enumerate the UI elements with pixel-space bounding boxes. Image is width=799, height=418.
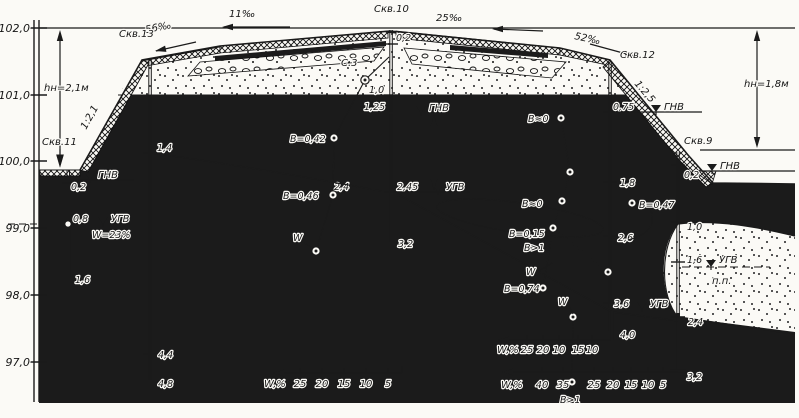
moisture-point bbox=[361, 76, 369, 84]
w-scale-c-tick-5: 10 bbox=[642, 380, 655, 391]
w-scale-a-tick-4: 5 bbox=[385, 379, 391, 390]
sample-b074: В=0,74 bbox=[504, 284, 540, 295]
w-scale-c-tick-2: 25 bbox=[588, 380, 601, 391]
skv9-depth-2-4: 2,4 bbox=[688, 317, 703, 328]
skv13-depth-4-8: 4,8 bbox=[158, 379, 173, 390]
sample-b0-top: В≈0 bbox=[528, 114, 549, 125]
sample-b046: В=0,46 bbox=[283, 191, 319, 202]
w-scale-b-label: W,% bbox=[497, 345, 519, 356]
gnv-skv9-label: ГНВ bbox=[720, 161, 740, 172]
ugv-skv9-label: УГВ bbox=[719, 255, 738, 266]
height-label-right: hн=1,8м bbox=[744, 79, 789, 90]
ugv-center-label: УГВ bbox=[446, 182, 465, 193]
w-scale-c-tick-3: 20 bbox=[607, 380, 620, 391]
skv10-depth-0-2: 0,2 bbox=[396, 33, 411, 44]
skv12-depth-1-8: 1,8 bbox=[620, 178, 635, 189]
w-scale-a-tick-0: 25 bbox=[294, 379, 307, 390]
moisture-point bbox=[557, 114, 565, 122]
skv11-depth-0-2: 0,2 bbox=[71, 182, 86, 193]
w-scale-a-tick-2: 15 bbox=[338, 379, 351, 390]
skv11-depth-1-6: 1,6 bbox=[75, 275, 90, 286]
skv12-depth-3-6: 3,6 bbox=[614, 299, 629, 310]
w-scale-c-tick-6: 5 bbox=[660, 380, 666, 391]
w23-label: W=23% bbox=[92, 230, 130, 241]
w-scale-c-label: W,% bbox=[501, 380, 523, 391]
height-label-left: hн=2,1м bbox=[44, 83, 89, 94]
sample-b015: В=0,15 bbox=[509, 229, 545, 240]
skv12-depth-4-0: 4,0 bbox=[620, 330, 635, 341]
moisture-point bbox=[628, 199, 636, 207]
sample-w-mid: W bbox=[526, 267, 536, 278]
cross-section-drawing: 102,0 101,0 100,0 99,0 98,0 97,0 hн=2,1м… bbox=[0, 0, 799, 418]
elevation-label-98: 98,0 bbox=[6, 289, 31, 302]
cross-section-figure: 102,0 101,0 100,0 99,0 98,0 97,0 hн=2,1м… bbox=[0, 0, 799, 418]
sample-b0-mid: В≈0 bbox=[522, 199, 543, 210]
w-scale-b-tick-0: 25 bbox=[521, 345, 534, 356]
skv10-depth-1-25: 1,25 bbox=[364, 102, 385, 113]
skv13-depth-1-4: 1,4 bbox=[157, 143, 172, 154]
borehole-label-skv10: Скв.10 bbox=[374, 4, 409, 15]
moisture-point bbox=[558, 197, 566, 205]
w-scale-b-tick-4: 10 bbox=[586, 345, 599, 356]
moisture-point bbox=[330, 134, 338, 142]
w-scale-c-tick-0: 40 bbox=[536, 380, 549, 391]
sample-bgt1-mid: В>1 bbox=[524, 243, 545, 254]
sample-w-low: W bbox=[558, 297, 568, 308]
skv9-depth-0-2: 0,2 bbox=[684, 170, 699, 181]
moisture-point bbox=[549, 224, 557, 232]
moisture-point bbox=[539, 284, 547, 292]
w-scale-c-tick-1: 35 bbox=[557, 380, 570, 391]
grade-label-11: 11‰ bbox=[229, 9, 255, 20]
sample-c3: С.3 bbox=[341, 58, 358, 69]
w-scale-a-tick-1: 20 bbox=[316, 379, 329, 390]
grade-label-52: 52‰ bbox=[573, 31, 601, 47]
w-scale-a-label: W,% bbox=[264, 379, 286, 390]
left-ground-strip bbox=[40, 170, 80, 176]
skv9-depth-1-6: 1,6 bbox=[687, 255, 702, 266]
elevation-label-97: 97,0 bbox=[6, 356, 31, 369]
sample-w-skv13: W bbox=[293, 233, 303, 244]
moisture-point bbox=[566, 168, 574, 176]
sample-bgt1-bottom: В>1 bbox=[560, 395, 581, 406]
w-scale-b-tick-3: 15 bbox=[572, 345, 585, 356]
moisture-point bbox=[312, 247, 320, 255]
pp-label: п.п. bbox=[712, 276, 731, 287]
elevation-label-101: 101,0 bbox=[0, 89, 30, 102]
skv11-depth-0-8: 0,8 bbox=[73, 214, 88, 225]
ugv-skv12-label: УГВ bbox=[650, 299, 669, 310]
moisture-point bbox=[604, 268, 612, 276]
ugv-left-label: УГВ bbox=[111, 214, 130, 225]
gnv-center-label: ГНВ bbox=[429, 103, 449, 114]
moisture-point bbox=[569, 313, 577, 321]
skv12-depth-0-75: 0,75 bbox=[613, 102, 634, 113]
gnv-skv12-label: ГНВ bbox=[664, 102, 684, 113]
sample-b047: В=0,47 bbox=[639, 200, 675, 211]
w-scale-c-tick-4: 15 bbox=[625, 380, 638, 391]
elevation-label-100: 100,0 bbox=[0, 155, 30, 168]
gnv-left-label: ГНВ bbox=[98, 170, 118, 181]
w-scale-b-tick-2: 10 bbox=[553, 345, 566, 356]
borehole-label-skv9: Скв.9 bbox=[684, 136, 712, 147]
w-scale-b-tick-1: 20 bbox=[537, 345, 550, 356]
skv10-depth-3-2: 3,2 bbox=[398, 239, 413, 250]
skv10-depth-1-0: 1,0 bbox=[369, 85, 384, 96]
skv13-depth-4-4: 4,4 bbox=[158, 350, 173, 361]
skv9-depth-3-2: 3,2 bbox=[687, 372, 702, 383]
skv9-depth-1-0: 1,0 bbox=[687, 222, 702, 233]
elevation-label-102: 102,0 bbox=[0, 22, 30, 35]
skv12-depth-2-6: 2,6 bbox=[618, 233, 633, 244]
w-scale-a-tick-3: 10 bbox=[360, 379, 373, 390]
borehole-label-skv13: Скв.13 bbox=[119, 29, 154, 40]
sample-b042: В=0,42 bbox=[290, 134, 326, 145]
grade-label-25: 25‰ bbox=[436, 13, 462, 24]
borehole-label-skv12: Скв.12 bbox=[620, 50, 655, 61]
borehole-label-skv11: Скв.11 bbox=[42, 137, 77, 148]
moisture-point bbox=[329, 191, 337, 199]
slope-ratio-left: 1:2,1 bbox=[79, 104, 101, 132]
